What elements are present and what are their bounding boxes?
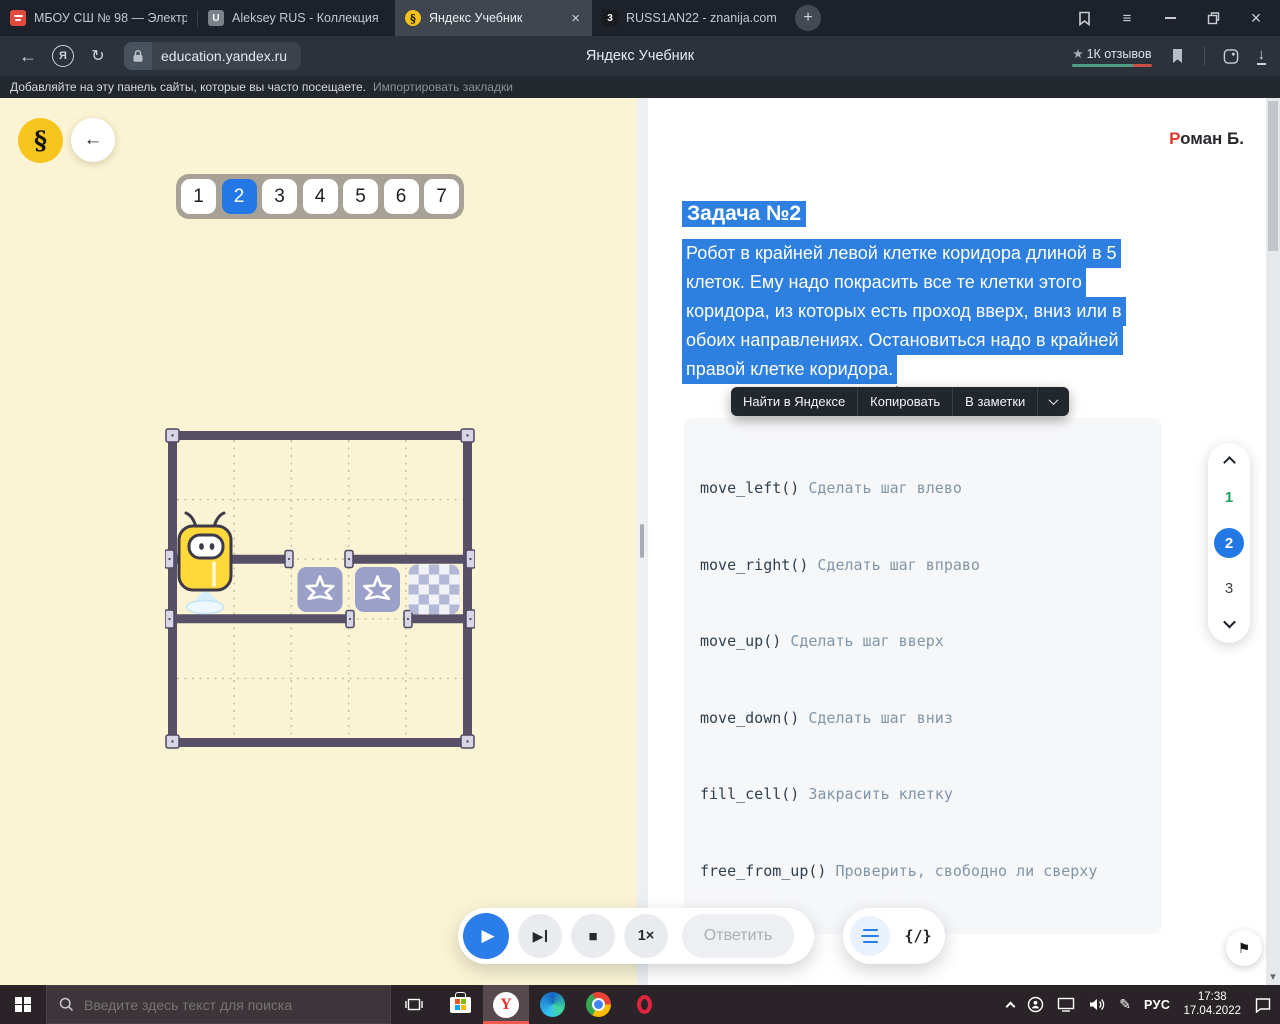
- assignment-panel: Роман Б. Задача №2 Робот в крайней левой…: [648, 98, 1266, 985]
- yandex-browser-icon: Y: [493, 992, 519, 1018]
- task-button-4[interactable]: 4: [303, 179, 338, 214]
- stop-button[interactable]: ■: [571, 914, 615, 958]
- menu-item-copy[interactable]: Копировать: [857, 387, 952, 416]
- menu-item-find-in-yandex[interactable]: Найти в Яндексе: [731, 387, 857, 416]
- window-controls: ≡ ×: [1076, 10, 1280, 26]
- student-name: Роман Б.: [1169, 129, 1244, 149]
- chevron-down-icon: [1049, 395, 1059, 405]
- tab-collection[interactable]: U Aleksey RUS - Коллекция: [198, 0, 395, 36]
- microsoft-store-button[interactable]: [437, 985, 483, 1024]
- star-tile-2: [355, 567, 400, 612]
- taskbar-search-input[interactable]: [84, 997, 364, 1013]
- back-icon[interactable]: ←: [14, 46, 42, 67]
- browser-tab-bar: МБОУ СШ № 98 — Электр U Aleksey RUS - Ко…: [0, 0, 1280, 36]
- tab-title: Яндекс Учебник: [429, 11, 561, 25]
- reviews-label: 1К отзывов: [1087, 47, 1152, 61]
- windows-logo-icon: [15, 997, 31, 1013]
- program-player: ▶ ▶ ■ 1× Ответить: [458, 908, 814, 964]
- lock-icon: [124, 42, 152, 70]
- star-tile-1: [298, 567, 343, 612]
- import-bookmarks-link[interactable]: Импортировать закладки: [373, 80, 513, 94]
- task-title: Задача №2: [682, 201, 806, 227]
- site-reviews[interactable]: ★1К отзывов: [1072, 46, 1151, 67]
- robot-eye-right: [210, 543, 215, 550]
- play-button[interactable]: ▶: [463, 913, 509, 959]
- task-button-7[interactable]: 7: [424, 179, 459, 214]
- chevron-down-icon[interactable]: [1223, 616, 1236, 629]
- minimize-icon[interactable]: [1162, 10, 1178, 26]
- splitter-handle[interactable]: [640, 524, 644, 558]
- tab-title: МБОУ СШ № 98 — Электр: [34, 11, 187, 25]
- tab-title: Aleksey RUS - Коллекция: [232, 11, 385, 25]
- u-badge-icon: U: [208, 10, 224, 26]
- uchebnik-logo: §: [18, 118, 63, 163]
- robot-eye-left: [199, 543, 204, 550]
- nav-divider: [1204, 46, 1205, 66]
- robot: [179, 513, 231, 614]
- menu-item-notes[interactable]: В заметки: [952, 387, 1037, 416]
- lesson-panel: § ← 1 2 3 4 5 6 7: [0, 98, 637, 985]
- chevron-up-icon[interactable]: [1223, 456, 1236, 469]
- rating-bar: [1072, 64, 1151, 67]
- clock-time: 17:38: [1198, 991, 1227, 1003]
- task-button-1[interactable]: 1: [181, 179, 216, 214]
- pager-item-1[interactable]: 1: [1225, 489, 1233, 506]
- browser-nav-bar: ← Я ↻ education.yandex.ru Яндекс Учебник…: [0, 36, 1280, 76]
- znanija-icon: 3: [602, 10, 618, 26]
- robot-field: [165, 427, 475, 750]
- report-flag-button[interactable]: ⚑: [1226, 930, 1262, 966]
- menu-more-chevron[interactable]: [1037, 387, 1069, 416]
- task-view-button[interactable]: [391, 985, 437, 1024]
- system-tray: ✎ РУС 17:38 17.04.2022: [1007, 991, 1280, 1018]
- blocks-view-button[interactable]: [850, 916, 890, 956]
- finish-tile: [409, 565, 460, 615]
- task-button-2-selected[interactable]: 2: [222, 179, 257, 214]
- restore-icon[interactable]: [1205, 10, 1221, 26]
- pen-icon[interactable]: ✎: [1119, 996, 1131, 1013]
- yandex-browser-button-active[interactable]: Y: [483, 985, 529, 1024]
- taskbar-search[interactable]: [46, 985, 391, 1024]
- url-text: education.yandex.ru: [152, 48, 301, 64]
- task-button-5[interactable]: 5: [343, 179, 378, 214]
- screen: МБОУ СШ № 98 — Электр U Aleksey RUS - Ко…: [0, 0, 1280, 1024]
- star-icon: ★: [1072, 47, 1083, 61]
- tab-school-site[interactable]: МБОУ СШ № 98 — Электр: [0, 0, 197, 36]
- tray-chevron-icon[interactable]: [1006, 1002, 1016, 1012]
- code-view-button[interactable]: {/}: [898, 916, 938, 956]
- document-icon: [10, 10, 26, 26]
- command-reference: move_left()Сделать шаг влево move_right(…: [684, 418, 1162, 934]
- close-window-icon[interactable]: ×: [1248, 10, 1264, 26]
- volume-icon[interactable]: [1088, 997, 1106, 1012]
- edge-icon: [540, 992, 565, 1017]
- opera-button[interactable]: [621, 985, 667, 1024]
- panel-splitter: [637, 98, 648, 985]
- scrollbar-down-arrow[interactable]: ▾: [1266, 970, 1280, 983]
- step-button[interactable]: ▶: [518, 914, 562, 958]
- step-icon: ▶: [533, 928, 544, 945]
- action-center-icon[interactable]: [1254, 997, 1272, 1013]
- browser-menu-icon[interactable]: ≡: [1119, 10, 1135, 26]
- meet-now-icon[interactable]: [1027, 996, 1044, 1013]
- start-button[interactable]: [0, 985, 46, 1024]
- network-display-icon[interactable]: [1057, 997, 1075, 1012]
- tab-znanija[interactable]: 3 RUSS1AN22 - znanija.com: [592, 0, 789, 36]
- scrollbar-thumb[interactable]: [1268, 101, 1278, 251]
- task-number-selector: 1 2 3 4 5 6 7: [176, 174, 464, 219]
- chrome-button[interactable]: [575, 985, 621, 1024]
- bookmarks-bar: Добавляйте на эту панель сайты, которые …: [0, 76, 1280, 98]
- robot-face: [189, 535, 223, 558]
- opera-icon: [637, 995, 652, 1014]
- tab-title: RUSS1AN22 - znanija.com: [626, 11, 779, 25]
- answer-button[interactable]: Ответить: [682, 914, 794, 958]
- downloads-icon[interactable]: ↓: [1257, 47, 1267, 65]
- speed-button[interactable]: 1×: [624, 914, 668, 958]
- store-icon: [450, 997, 471, 1013]
- chrome-icon: [586, 992, 611, 1017]
- nav-right-cluster: ★1К отзывов ↓: [1072, 46, 1266, 67]
- windows-taskbar: Y ✎ РУС 17:38 17.04.2022: [0, 985, 1280, 1024]
- bookmarks-hint: Добавляйте на эту панель сайты, которые …: [10, 80, 366, 94]
- pager-item-2-selected[interactable]: 2: [1214, 528, 1244, 558]
- edge-button[interactable]: [529, 985, 575, 1024]
- address-bar[interactable]: education.yandex.ru: [124, 42, 301, 70]
- view-toggle: {/}: [843, 908, 945, 964]
- tab-close-icon[interactable]: ×: [569, 11, 582, 26]
- search-icon: [59, 997, 74, 1012]
- bookmark-flag-icon[interactable]: [1170, 48, 1186, 64]
- task-description: Робот в крайней левой клетке коридора дл…: [682, 239, 1126, 384]
- yandex-home-icon[interactable]: Я: [52, 45, 74, 67]
- reload-icon[interactable]: ↻: [84, 46, 112, 66]
- uchebnik-section-icon: §: [405, 10, 421, 26]
- pager-item-3[interactable]: 3: [1225, 580, 1233, 597]
- task-pager: 1 2 3: [1208, 443, 1250, 643]
- page-scrollbar[interactable]: ▾: [1266, 98, 1280, 985]
- tab-uchebnik-active[interactable]: § Яндекс Учебник ×: [395, 0, 592, 36]
- page-title: Яндекс Учебник: [586, 48, 694, 64]
- clock-date: 17.04.2022: [1183, 1005, 1241, 1017]
- language-indicator[interactable]: РУС: [1144, 998, 1170, 1012]
- collections-icon[interactable]: [1223, 48, 1239, 64]
- selection-context-menu: Найти в Яндексе Копировать В заметки: [731, 387, 1069, 416]
- task-button-3[interactable]: 3: [262, 179, 297, 214]
- task-button-6[interactable]: 6: [384, 179, 419, 214]
- taskbar-clock[interactable]: 17:38 17.04.2022: [1183, 991, 1241, 1018]
- task-view-icon: [405, 997, 423, 1012]
- lesson-back-button[interactable]: ←: [71, 118, 115, 162]
- new-tab-button[interactable]: +: [795, 5, 821, 31]
- bookmarks-panel-icon[interactable]: [1076, 10, 1092, 26]
